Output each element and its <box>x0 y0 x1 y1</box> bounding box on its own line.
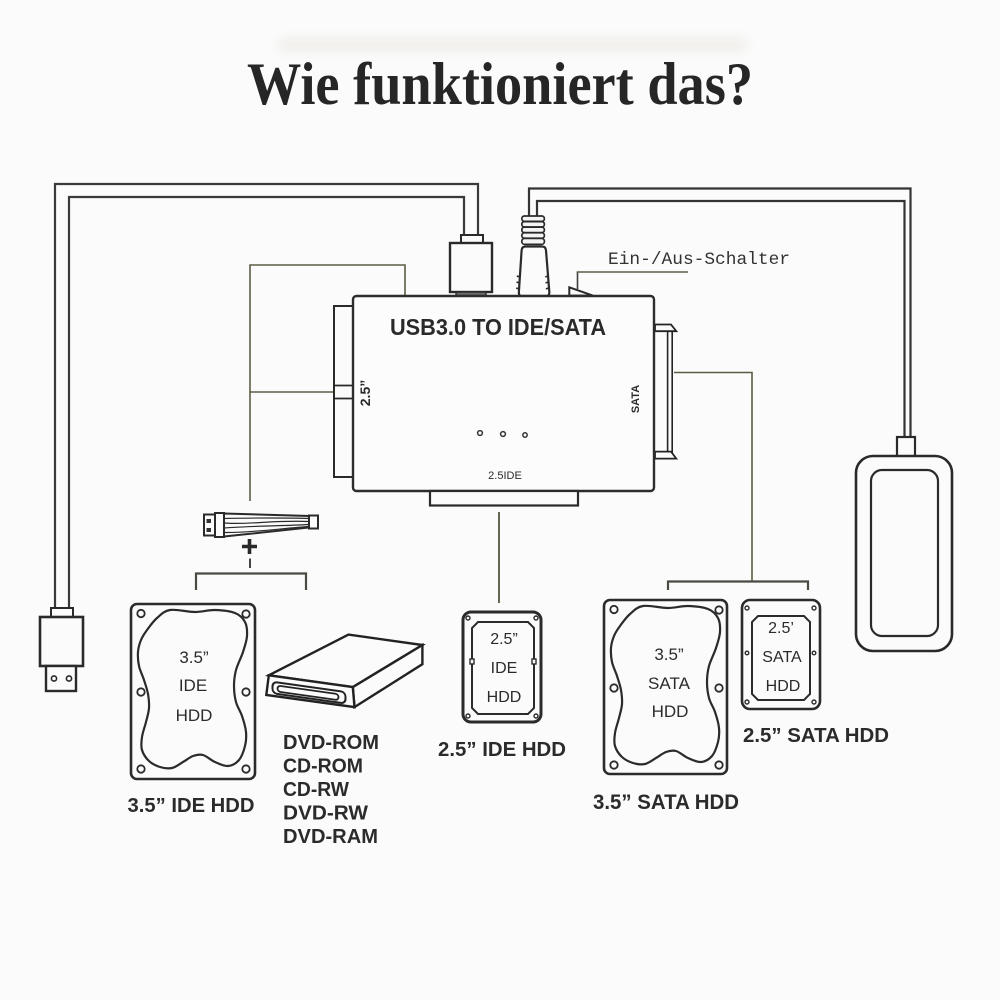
svg-text:HDD: HDD <box>766 678 801 695</box>
svg-text:CD-RW: CD-RW <box>283 779 349 801</box>
svg-text:2.5’: 2.5’ <box>768 620 794 637</box>
svg-text:IDE: IDE <box>491 660 518 677</box>
svg-text:Wie funktioniert das?: Wie funktioniert das? <box>247 51 753 117</box>
svg-text:3.5”: 3.5” <box>179 648 209 667</box>
svg-text:3.5” IDE HDD: 3.5” IDE HDD <box>128 794 255 817</box>
svg-text:2.5”: 2.5” <box>490 631 518 648</box>
svg-text:IDE: IDE <box>179 676 207 695</box>
svg-text:3.5” SATA HDD: 3.5” SATA HDD <box>593 791 739 814</box>
svg-text:DVD-RAM: DVD-RAM <box>283 826 378 848</box>
svg-text:HDD: HDD <box>652 702 689 721</box>
svg-text:SATA: SATA <box>762 649 802 666</box>
svg-text:SATA: SATA <box>630 385 642 413</box>
svg-text:CD-ROM: CD-ROM <box>283 756 363 778</box>
svg-text:SATA: SATA <box>648 674 691 693</box>
svg-text:2.5” IDE HDD: 2.5” IDE HDD <box>438 739 566 761</box>
svg-text:HDD: HDD <box>176 706 213 725</box>
svg-text:2.5” SATA HDD: 2.5” SATA HDD <box>743 725 889 747</box>
svg-text:Ein-/Aus-Schalter: Ein-/Aus-Schalter <box>608 250 790 270</box>
svg-text:HDD: HDD <box>487 689 522 706</box>
svg-text:USB3.0 TO IDE/SATA: USB3.0 TO IDE/SATA <box>390 314 606 340</box>
svg-text:2.5IDE: 2.5IDE <box>488 470 522 482</box>
svg-text:DVD-ROM: DVD-ROM <box>283 732 379 754</box>
svg-text:DVD-RW: DVD-RW <box>283 803 368 825</box>
svg-text:3.5”: 3.5” <box>654 645 684 664</box>
svg-text:2.5”: 2.5” <box>357 380 373 406</box>
